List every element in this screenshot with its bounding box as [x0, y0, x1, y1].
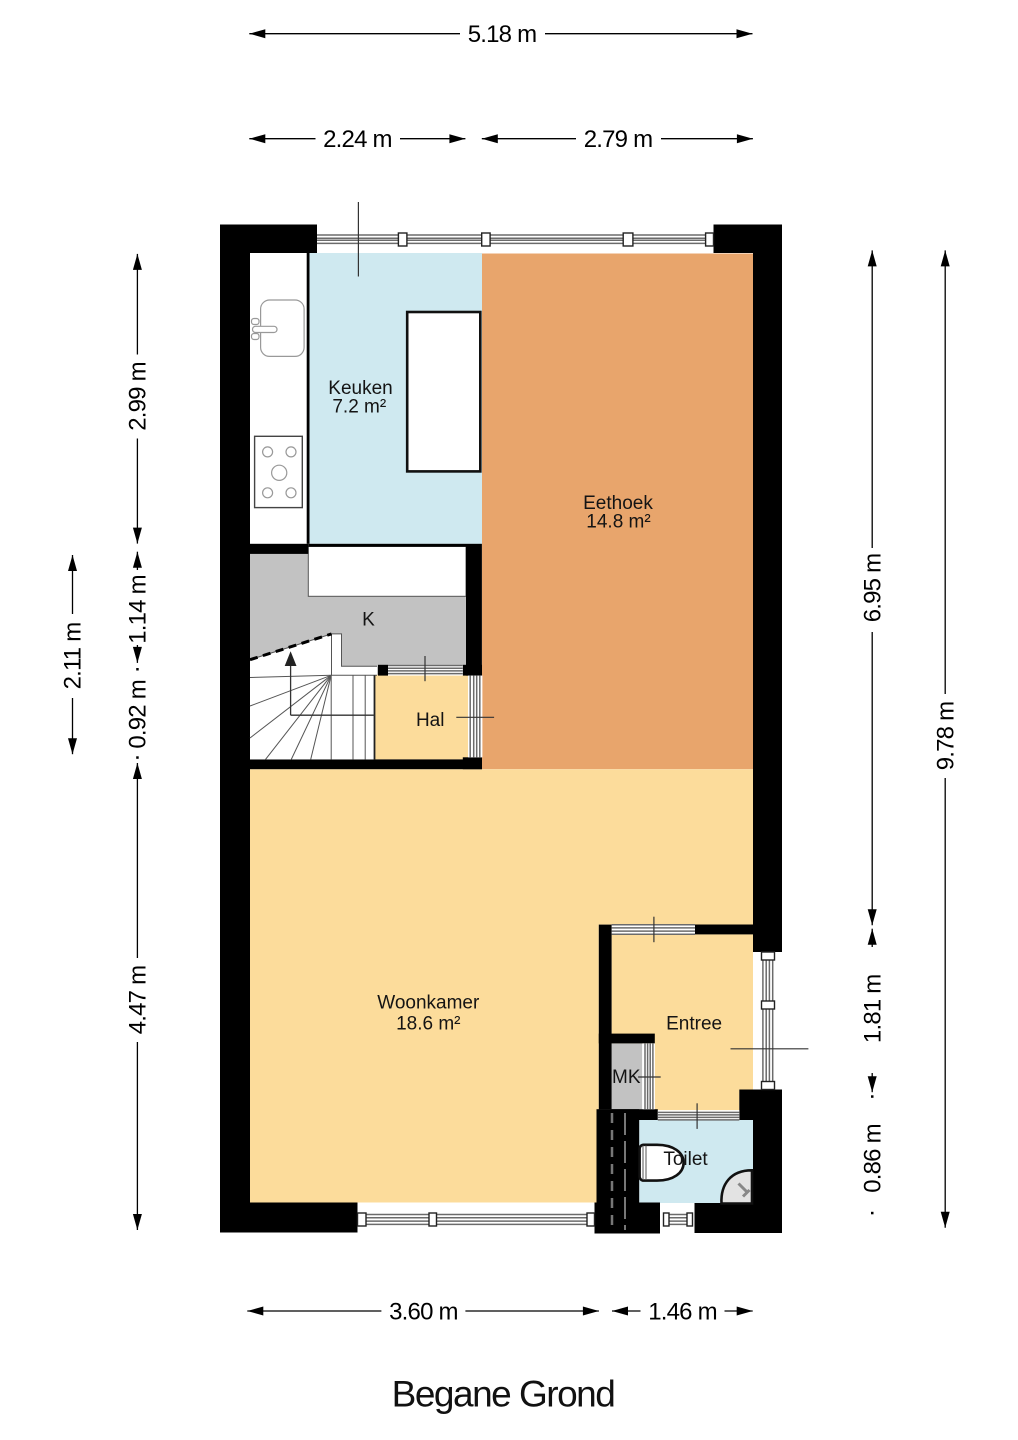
svg-text:2.11 m: 2.11 m [60, 623, 87, 690]
svg-text:7.2 m²: 7.2 m² [332, 396, 386, 417]
svg-text:2.99 m: 2.99 m [125, 362, 152, 431]
svg-text:5.18 m: 5.18 m [468, 21, 537, 48]
svg-text:14.8 m²: 14.8 m² [586, 512, 650, 533]
svg-text:Begane Grond: Begane Grond [392, 1373, 615, 1414]
svg-text:K: K [362, 610, 375, 631]
svg-text:0.92 m: 0.92 m [125, 680, 152, 749]
svg-text:0.86 m: 0.86 m [859, 1124, 886, 1193]
svg-text:3.60 m: 3.60 m [389, 1298, 458, 1325]
svg-text:2.24 m: 2.24 m [323, 126, 392, 153]
svg-text:Woonkamer: Woonkamer [377, 993, 480, 1014]
svg-text:1.81 m: 1.81 m [859, 975, 886, 1044]
svg-text:Hal: Hal [416, 710, 445, 731]
svg-text:1.46 m: 1.46 m [648, 1298, 717, 1325]
svg-text:MK: MK [612, 1067, 641, 1088]
svg-text:18.6 m²: 18.6 m² [396, 1014, 460, 1035]
svg-text:1.14 m: 1.14 m [125, 575, 152, 644]
svg-text:Toilet: Toilet [663, 1149, 708, 1170]
svg-text:6.95 m: 6.95 m [859, 554, 886, 623]
svg-text:9.78 m: 9.78 m [932, 702, 959, 771]
svg-text:Entree: Entree [666, 1014, 722, 1035]
svg-text:4.47 m: 4.47 m [125, 966, 152, 1035]
svg-text:2.79 m: 2.79 m [584, 126, 653, 153]
